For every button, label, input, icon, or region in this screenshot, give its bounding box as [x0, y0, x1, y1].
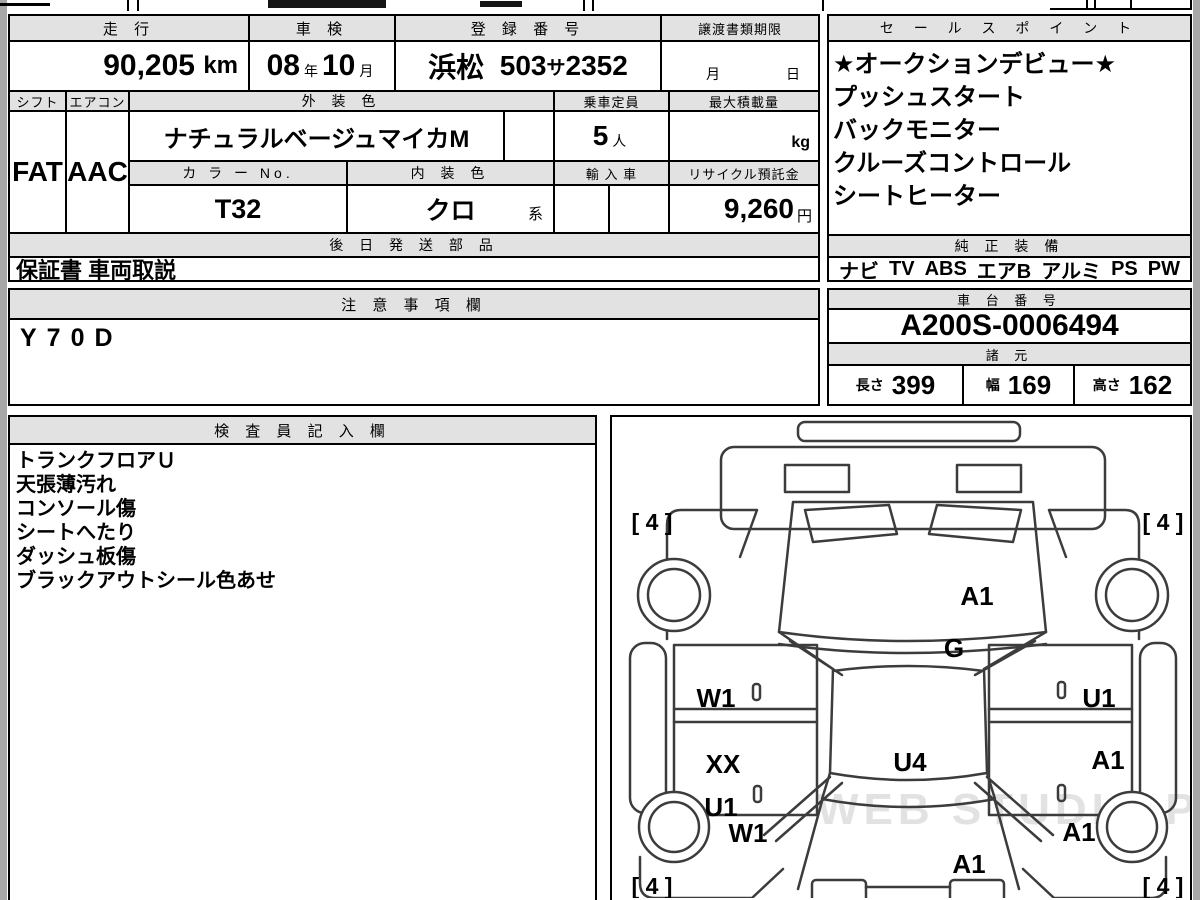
chassis-specs-panel: 車 台 番 号 A200S-0006494 諸 元 長さ 399 幅 169 高… — [827, 288, 1192, 406]
later-parts-value: 保証書 車両取説 — [10, 258, 818, 280]
wiper-left — [805, 505, 897, 542]
plate-number: 2352 — [566, 50, 628, 82]
specs-header: 諸 元 — [829, 344, 1190, 366]
equipment-item: ナビ — [839, 255, 879, 284]
spec-width-cell: 幅 169 — [964, 366, 1075, 404]
spec-height-label: 高さ — [1093, 375, 1121, 395]
top-cutoff-row — [0, 0, 1200, 13]
max-load-value: kg — [670, 112, 818, 162]
shaken-month-unit: 月 — [359, 61, 373, 81]
plate-area: 浜松 — [428, 46, 484, 86]
mileage-header: 走 行 — [10, 16, 250, 42]
inspector-notes-list: トランクフロアＵ 天張薄汚れ コンソール傷 シートへたり ダッシュ板傷 ブラック… — [16, 449, 591, 609]
cutoff-border — [583, 0, 585, 11]
car-damage-diagram: [ 4 ] [ 4 ] [ 4 ] [ 4 ] A1 G W1 U1 XX U4… — [612, 417, 1190, 898]
shift-value: FAT — [10, 112, 67, 234]
c-pillar-right — [975, 777, 1053, 841]
door-block-right — [989, 645, 1132, 815]
spec-width-value: 169 — [1008, 370, 1051, 401]
interior-color-name: クロ — [425, 191, 475, 227]
side-strip-right — [1140, 643, 1176, 813]
spec-width-label: 幅 — [986, 375, 1000, 395]
inspector-note: ブラックアウトシール色あせ — [16, 569, 591, 593]
shaken-header: 車 検 — [250, 16, 396, 42]
aircon-value: AAC — [67, 112, 130, 234]
sales-point-item: シートヒーター — [833, 180, 1188, 213]
exterior-color-value: ナチュラルベージュマイカM — [130, 112, 505, 162]
cutoff-text-remnant — [268, 0, 386, 8]
cutoff-line — [1050, 8, 1192, 10]
cutoff-border — [822, 0, 824, 11]
shaken-month: 10 — [322, 49, 355, 83]
windshield — [779, 502, 1046, 641]
mileage-value: 90,205 km — [10, 42, 250, 92]
grille-right — [957, 465, 1021, 492]
interior-color-value: クロ 系 — [348, 186, 555, 234]
spec-height-value: 162 — [1129, 370, 1172, 401]
door-handle — [1058, 682, 1065, 698]
shaken-year-unit: 年 — [304, 61, 318, 81]
auction-sheet: 走 行 車 検 登 録 番 号 譲渡書類期限 90,205 km 08年10月 … — [0, 0, 1200, 900]
mark-rear-left-fender: W1 — [729, 818, 768, 848]
mark-rear-left-door-upper: XX — [706, 749, 741, 779]
tire-mark-rear-right: [ 4 ] — [1143, 873, 1184, 898]
hatch-sides — [798, 801, 1019, 889]
chassis-value: A200S-0006494 — [829, 310, 1190, 344]
wheel-rear-right-inner — [1107, 802, 1157, 852]
rear-light-left — [812, 880, 866, 898]
registration-header: 登 録 番 号 — [396, 16, 662, 42]
inspector-note: シートへたり — [16, 521, 591, 545]
recycle-fee-unit: 円 — [797, 205, 812, 226]
sales-point-item: バックモニター — [833, 114, 1188, 147]
inspector-note: 天張薄汚れ — [16, 473, 591, 497]
sales-point-item: クルーズコントロール — [833, 147, 1188, 180]
cutoff-line — [0, 3, 50, 6]
mark-rear-hatch: A1 — [952, 849, 985, 879]
shaken-year: 08 — [267, 49, 300, 83]
door-block-left — [674, 645, 817, 815]
wheel-rear-left-inner — [649, 802, 699, 852]
inspector-note: コンソール傷 — [16, 497, 591, 521]
notes-header: 注 意 事 項 欄 — [10, 290, 818, 320]
grille-left — [785, 465, 849, 492]
import-car-cell-2 — [610, 186, 670, 234]
max-load-unit: kg — [791, 134, 810, 152]
capacity-value: 5人 — [555, 112, 670, 162]
exterior-color-extra-cell — [505, 112, 555, 162]
front-bumper-strip — [798, 422, 1020, 441]
rear-window-arc — [822, 773, 995, 807]
left-margin — [0, 0, 7, 900]
spec-length-value: 399 — [892, 370, 935, 401]
door-handle — [1058, 785, 1065, 801]
transfer-docs-value: 月 日 — [662, 42, 818, 92]
rear-light-right — [950, 880, 1004, 898]
shift-header: シフト — [10, 92, 67, 112]
import-car-cell-1 — [555, 186, 610, 234]
side-strip-left — [630, 643, 666, 813]
equipment-item: エアB — [977, 255, 1031, 284]
equipment-item: TV — [889, 258, 915, 281]
inspector-note: ダッシュ板傷 — [16, 545, 591, 569]
recycle-fee-value: 9,260円 — [670, 186, 818, 234]
mark-rear-right-fender: A1 — [1062, 817, 1095, 847]
mark-cowl: G — [944, 633, 964, 663]
inspector-notes-header: 検 査 員 記 入 欄 — [10, 417, 595, 445]
cutoff-border — [127, 0, 129, 11]
spec-length-cell: 長さ 399 — [829, 366, 964, 404]
mileage-unit: km — [203, 52, 238, 80]
equipment-item: アルミ — [1041, 255, 1101, 284]
equipment-item: ABS — [925, 258, 967, 281]
interior-color-header: 内 装 色 — [348, 162, 555, 186]
cutoff-text-remnant — [480, 1, 522, 7]
mark-roof: U4 — [893, 747, 927, 777]
sales-point-item: プッシュスタート — [833, 81, 1188, 114]
max-load-header: 最大積載量 — [670, 92, 818, 112]
mileage-number: 90,205 — [103, 49, 195, 83]
wheel-front-left-inner — [648, 569, 700, 621]
rear-bumper-lines — [866, 887, 950, 898]
wheel-front-right-inner — [1106, 569, 1158, 621]
mark-front-left-door: W1 — [697, 683, 736, 713]
tire-mark-rear-left: [ 4 ] — [632, 873, 673, 898]
front-face — [721, 447, 1105, 529]
inspector-note: トランクフロアＵ — [16, 449, 591, 473]
plate-kana: サ — [546, 53, 565, 80]
shaken-value: 08年10月 — [250, 42, 396, 92]
spec-height-cell: 高さ 162 — [1075, 366, 1190, 404]
inspector-notes-panel: 検 査 員 記 入 欄 トランクフロアＵ 天張薄汚れ コンソール傷 シートへたり… — [8, 415, 597, 900]
tire-mark-front-left: [ 4 ] — [632, 509, 673, 535]
door-handle — [753, 684, 760, 700]
aircon-header: エアコン — [67, 92, 130, 112]
sales-points-list: ★オークションデビュー★ プッシュスタート バックモニター クルーズコントロール… — [833, 48, 1188, 232]
registration-plate: 浜松 503サ2352 — [396, 42, 662, 92]
transfer-month-unit: 月 — [706, 64, 720, 84]
molding-left — [674, 709, 817, 722]
chassis-header: 車 台 番 号 — [829, 290, 1190, 310]
sales-point-item: ★オークションデビュー★ — [833, 48, 1188, 81]
transfer-docs-header: 譲渡書類期限 — [662, 16, 818, 42]
c-pillar-left — [764, 777, 842, 841]
right-margin — [1193, 0, 1200, 900]
mark-front-right-door: U1 — [1082, 683, 1115, 713]
later-parts-header: 後 日 発 送 部 品 — [10, 234, 818, 258]
equipment-item: PS — [1111, 258, 1138, 281]
capacity-number: 5 — [593, 120, 609, 152]
interior-color-suffix: 系 — [528, 203, 543, 224]
notes-value: Y70D — [10, 320, 818, 356]
mark-rear-right-door: A1 — [1091, 745, 1124, 775]
car-diagram-panel: WEB STUDIO PRO — [610, 415, 1192, 900]
cutoff-border — [592, 0, 594, 11]
color-no-header: カ ラ ー No. — [130, 162, 348, 186]
recycle-fee-header: リサイクル預託金 — [670, 162, 818, 186]
spec-length-label: 長さ — [856, 375, 884, 395]
mark-windshield: A1 — [960, 581, 993, 611]
door-handle — [754, 786, 761, 802]
wiper-right — [929, 505, 1021, 542]
import-car-header: 輸 入 車 — [555, 162, 670, 186]
equipment-item: PW — [1148, 258, 1180, 281]
capacity-unit: 人 — [612, 131, 626, 151]
sales-points-header: セ ー ル ス ポ イ ン ト — [829, 16, 1190, 42]
cutoff-border — [137, 0, 139, 11]
capacity-header: 乗車定員 — [555, 92, 670, 112]
transfer-day-unit: 日 — [786, 64, 800, 84]
factory-equipment-row: ナビ TV ABS エアB アルミ PS PW — [829, 258, 1190, 280]
main-info-table: 走 行 車 検 登 録 番 号 譲渡書類期限 90,205 km 08年10月 … — [8, 14, 820, 282]
tire-mark-front-right: [ 4 ] — [1143, 509, 1184, 535]
sales-points-panel: セ ー ル ス ポ イ ン ト ★オークションデビュー★ プッシュスタート バッ… — [827, 14, 1192, 282]
recycle-fee-number: 9,260 — [724, 193, 794, 225]
exterior-color-header: 外 装 色 — [130, 92, 555, 112]
notes-panel: 注 意 事 項 欄 Y70D — [8, 288, 820, 406]
color-no-value: T32 — [130, 186, 348, 234]
damage-marks: A1 G W1 U1 XX U4 A1 U1 W1 A1 A1 — [697, 581, 1125, 879]
plate-class: 503 — [500, 50, 547, 82]
